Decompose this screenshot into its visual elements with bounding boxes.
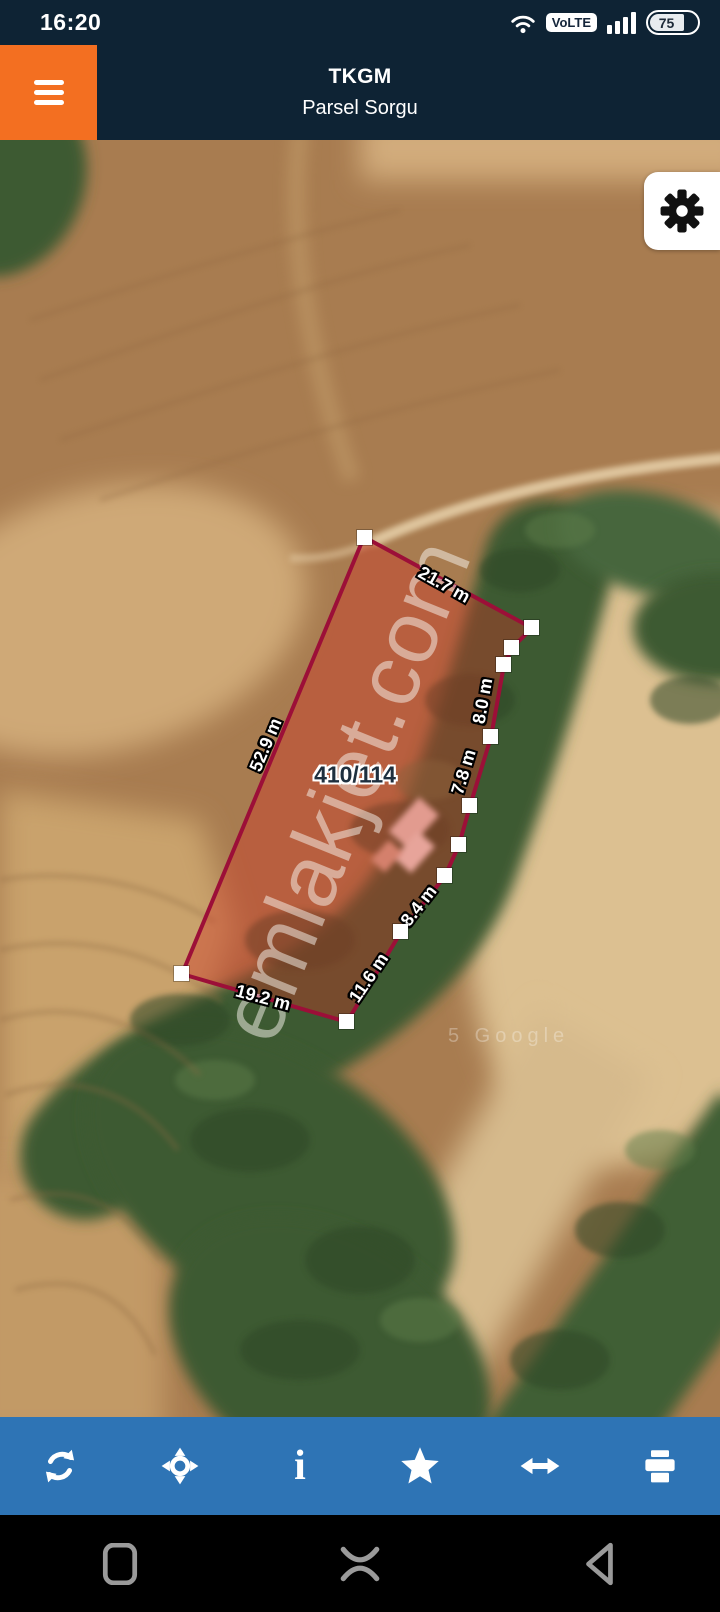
app-header: TKGM Parsel Sorgu: [0, 45, 720, 140]
map-settings-button[interactable]: [644, 172, 720, 250]
battery-icon: 75: [646, 10, 700, 35]
phone-screen: 16:20 VoLTE 75 TKGM Parsel Sorgu: [0, 0, 720, 1612]
recents-icon: [101, 1543, 139, 1585]
app-title: TKGM: [328, 65, 391, 89]
status-icons: VoLTE 75: [510, 10, 700, 35]
vertex-marker[interactable]: [524, 620, 539, 635]
vertex-marker[interactable]: [339, 1014, 354, 1029]
home-icon: [337, 1541, 383, 1587]
refresh-icon: [42, 1448, 78, 1484]
back-button[interactable]: [480, 1515, 720, 1612]
menu-button[interactable]: [0, 45, 97, 140]
vertex-marker[interactable]: [504, 640, 519, 655]
info-button[interactable]: i: [240, 1417, 360, 1515]
pan-location-button[interactable]: [120, 1417, 240, 1515]
signal-bars-icon: [607, 12, 636, 34]
home-button[interactable]: [240, 1515, 480, 1612]
star-icon: [400, 1446, 440, 1486]
android-nav-bar: [0, 1515, 720, 1612]
refresh-button[interactable]: [0, 1417, 120, 1515]
imagery-attribution: 5 Google: [448, 1025, 569, 1048]
print-button[interactable]: [600, 1417, 720, 1515]
favorite-button[interactable]: [360, 1417, 480, 1515]
map-toolbar: i: [0, 1417, 720, 1515]
clock: 16:20: [40, 9, 101, 36]
vertex-marker[interactable]: [483, 729, 498, 744]
battery-percent: 75: [648, 12, 685, 33]
vertex-marker[interactable]: [437, 868, 452, 883]
vertex-marker[interactable]: [393, 924, 408, 939]
recents-button[interactable]: [0, 1515, 240, 1612]
print-icon: [642, 1448, 678, 1484]
volte-badge: VoLTE: [546, 13, 597, 33]
swap-horizontal-icon: [520, 1451, 560, 1481]
back-icon: [579, 1541, 621, 1587]
wifi-icon: [510, 12, 536, 34]
status-bar: 16:20 VoLTE 75: [0, 0, 720, 45]
parcel-number-label: 410/114: [314, 762, 396, 789]
map-view[interactable]: emlakjet.com 5 Google 21.7 m 52.9 m 8.0 …: [0, 140, 720, 1417]
info-icon: i: [294, 1445, 306, 1487]
hamburger-menu-icon: [34, 80, 64, 85]
swap-extent-button[interactable]: [480, 1417, 600, 1515]
vertex-marker[interactable]: [462, 798, 477, 813]
vertex-marker[interactable]: [174, 966, 189, 981]
gear-icon: [660, 189, 704, 233]
vertex-marker[interactable]: [357, 530, 372, 545]
app-subtitle: Parsel Sorgu: [302, 97, 418, 120]
pan-location-icon: [161, 1447, 199, 1485]
vertex-marker[interactable]: [451, 837, 466, 852]
vertex-marker[interactable]: [496, 657, 511, 672]
